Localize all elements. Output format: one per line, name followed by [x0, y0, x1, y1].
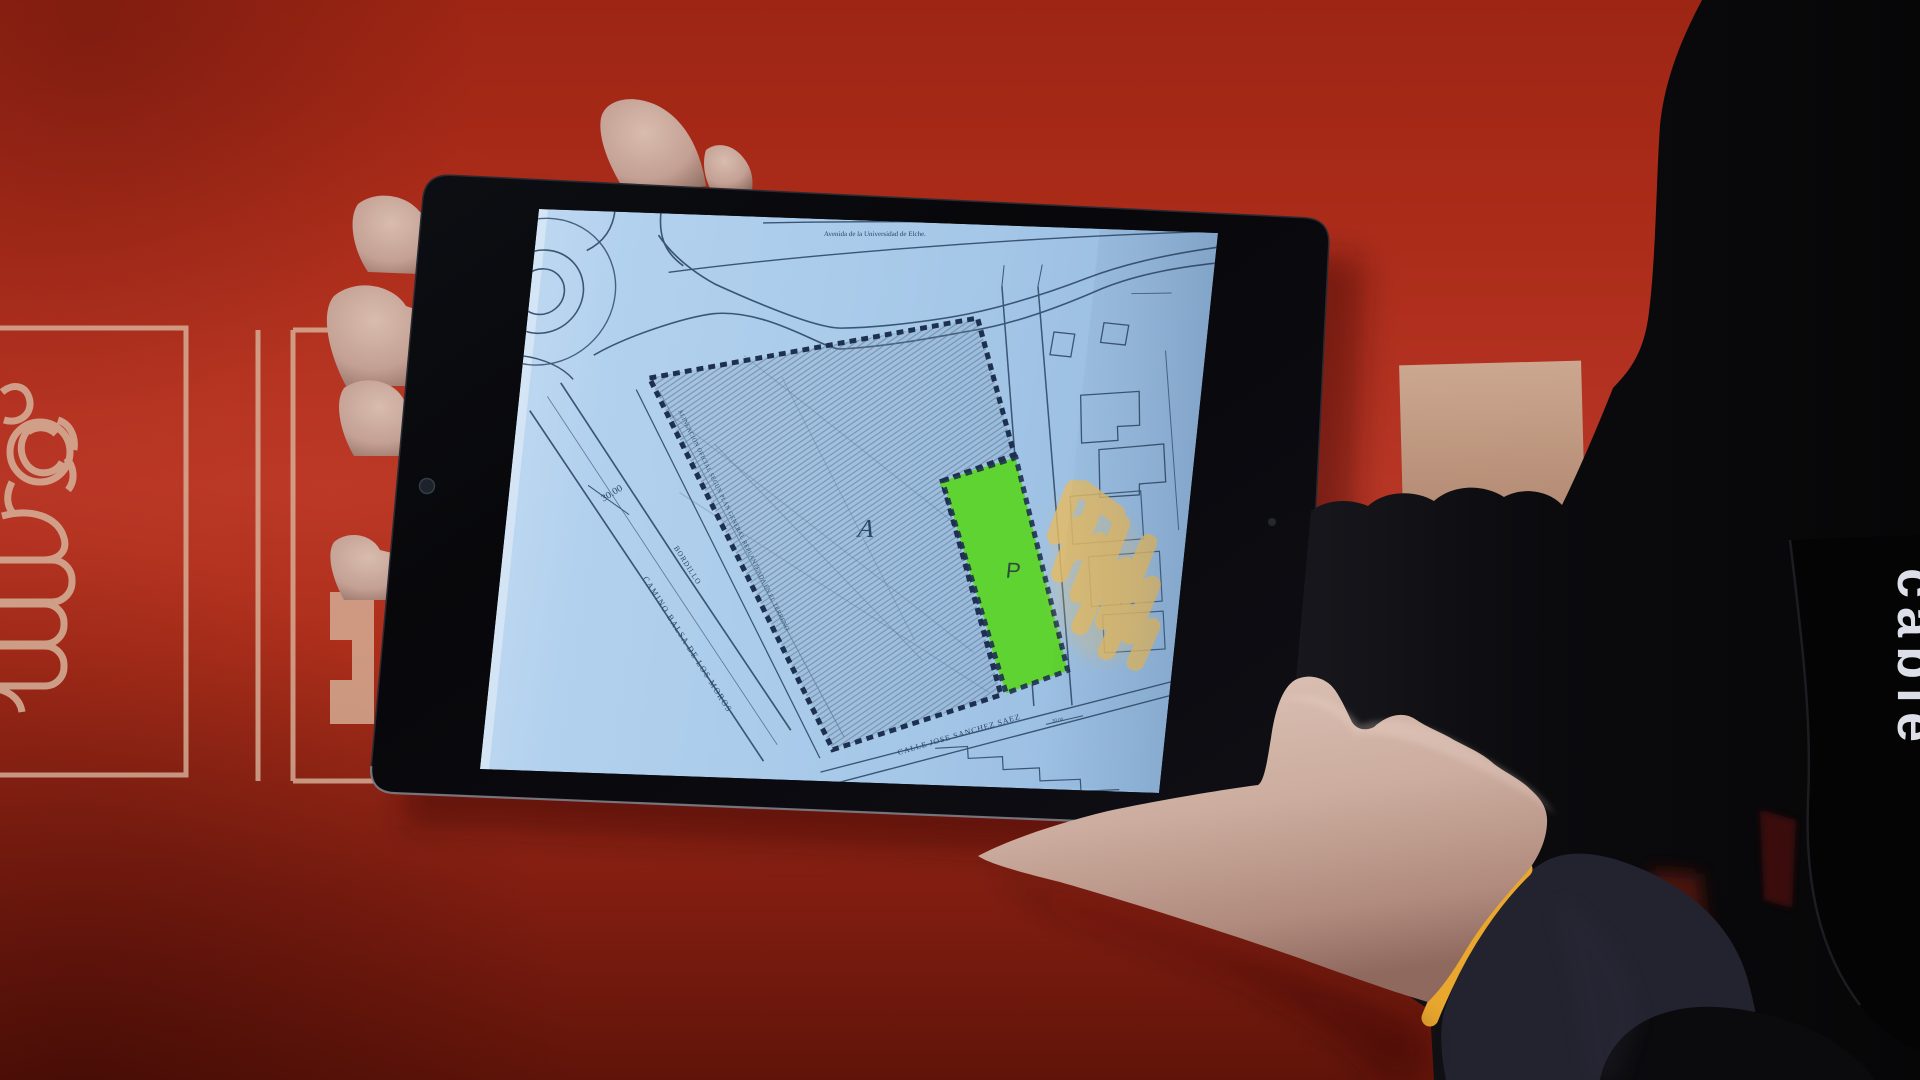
- svg-text:P: P: [1005, 558, 1022, 583]
- svg-text:cable: cable: [1886, 568, 1920, 751]
- svg-text:Avenida de la Universidad de E: Avenida de la Universidad de Elche.: [824, 230, 927, 238]
